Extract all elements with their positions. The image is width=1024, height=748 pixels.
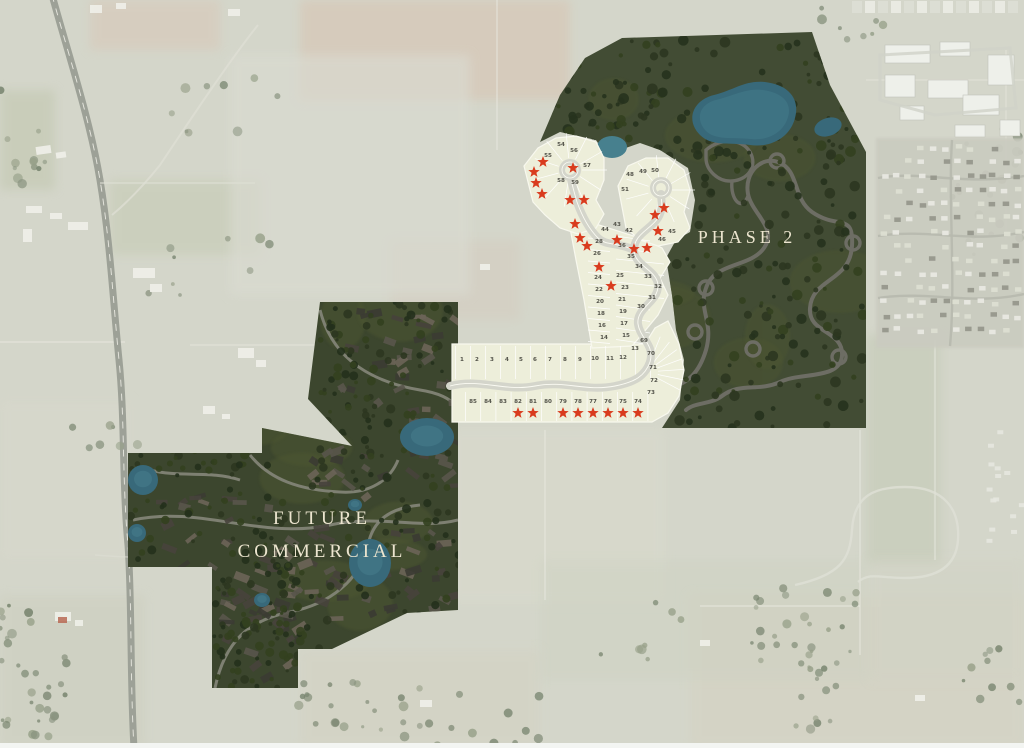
- lot-number: 58: [557, 178, 565, 184]
- lot-number: 1: [460, 357, 464, 363]
- lot-number: 25: [616, 273, 624, 279]
- lot-number: 21: [618, 297, 626, 303]
- lot-number: 23: [621, 285, 629, 291]
- lot-number: 18: [597, 311, 605, 317]
- lot-number: 85: [469, 399, 477, 405]
- lot-number: 22: [595, 287, 603, 293]
- lot-number: 74: [634, 399, 642, 405]
- lot-number: 28: [595, 239, 603, 245]
- lot-number: 77: [589, 399, 597, 405]
- future-commercial-label-line2: COMMERCIAL: [238, 541, 407, 562]
- lot-number: 31: [648, 295, 656, 301]
- lot-number: 11: [606, 356, 614, 362]
- lot-number: 43: [613, 222, 621, 228]
- lot-number: 82: [514, 399, 522, 405]
- lot-number: 30: [637, 304, 645, 310]
- lot-number: 3: [490, 357, 494, 363]
- lot-number: 14: [600, 335, 608, 341]
- lot-number: 72: [650, 378, 658, 384]
- lot-number: 26: [593, 251, 601, 257]
- lot-number: 81: [529, 399, 537, 405]
- lot-number: 15: [622, 333, 630, 339]
- image-bottom-border: [0, 743, 1024, 748]
- lot-number: 83: [499, 399, 507, 405]
- lot-number: 73: [647, 390, 655, 396]
- lot-number: 76: [604, 399, 612, 405]
- lot-number: 71: [649, 365, 657, 371]
- site-plan-canvas: 1234567891011121369707172738584838281807…: [0, 0, 1024, 748]
- lot-number: 35: [627, 254, 635, 260]
- lot-number: 48: [626, 172, 634, 178]
- lot-number: 6: [533, 357, 537, 363]
- lot-number: 9: [578, 357, 582, 363]
- future-commercial-label-line1: FUTURE: [273, 508, 371, 529]
- lot-number: 24: [594, 275, 602, 281]
- lot-number: 4: [505, 357, 509, 363]
- lot-number: 19: [619, 309, 627, 315]
- lot-number: 12: [619, 355, 627, 361]
- lot-number: 45: [668, 229, 676, 235]
- lot-number: 13: [631, 346, 639, 352]
- lot-number: 42: [625, 228, 633, 234]
- lot-number: 46: [658, 237, 666, 243]
- lot-number: 5: [519, 357, 523, 363]
- phase2-label: PHASE 2: [698, 227, 797, 247]
- lot-number: 51: [621, 187, 629, 193]
- lot-number: 75: [619, 399, 627, 405]
- lot-number: 78: [574, 399, 582, 405]
- aerial-master-plan-map: 1234567891011121369707172738584838281807…: [0, 0, 1024, 748]
- lot-number: 16: [598, 323, 606, 329]
- lot-number: 32: [654, 284, 662, 290]
- lot-number: 80: [544, 399, 552, 405]
- lot-number: 59: [571, 180, 579, 186]
- lot-number: 84: [484, 399, 492, 405]
- lot-number: 33: [644, 274, 652, 280]
- lot-number: 7: [548, 357, 552, 363]
- lot-number: 17: [620, 321, 628, 327]
- lot-number: 56: [570, 148, 578, 154]
- lot-number: 79: [559, 399, 567, 405]
- lot-number: 50: [651, 168, 659, 174]
- lot-number: 2: [475, 357, 479, 363]
- lot-number: 70: [647, 351, 655, 357]
- lot-number: 55: [544, 153, 552, 159]
- lot-number: 34: [635, 264, 643, 270]
- lot-number: 57: [583, 163, 591, 169]
- lot-number: 54: [557, 142, 565, 148]
- lot-number: 10: [591, 356, 599, 362]
- lot-number: 44: [601, 227, 609, 233]
- lot-number: 49: [639, 169, 647, 175]
- lot-number: 8: [563, 357, 567, 363]
- lot-number: 69: [640, 338, 648, 344]
- lot-number: 20: [596, 299, 604, 305]
